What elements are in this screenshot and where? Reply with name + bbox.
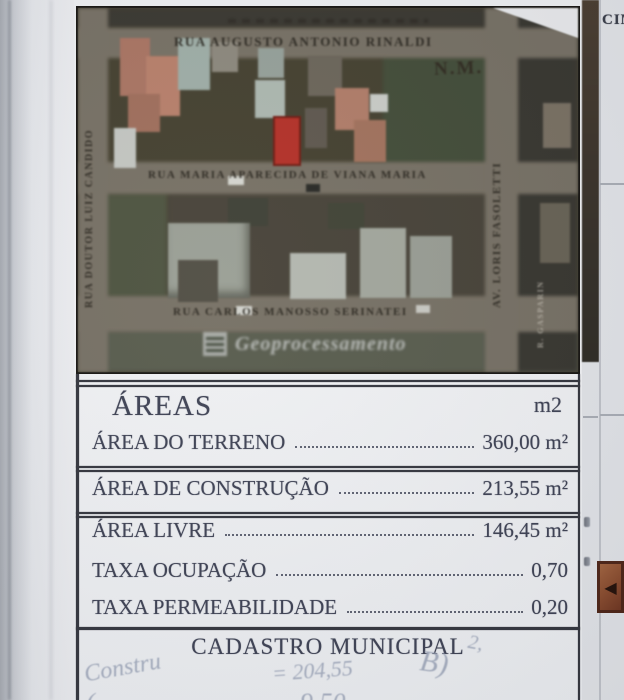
table-rule xyxy=(76,385,580,387)
photo-crease xyxy=(8,0,11,700)
adjacent-column-rule xyxy=(600,414,624,416)
area-row-value: 360,00 m² xyxy=(482,432,568,453)
map-building xyxy=(360,228,406,298)
leader-dots xyxy=(347,611,523,613)
map-small-text xyxy=(228,19,428,23)
map-building xyxy=(370,94,388,112)
map-building xyxy=(410,236,452,298)
area-row-value: 146,45 m² xyxy=(482,520,568,541)
satellite-map-image: RUA AUGUSTO ANTONIO RINALDI RUA MARIA AP… xyxy=(78,8,578,372)
handwritten-note: B) xyxy=(418,644,451,682)
area-row-label: ÁREA DE CONSTRUÇÃO xyxy=(92,478,329,499)
areas-unit-header: m2 xyxy=(500,392,562,418)
map-terrain xyxy=(103,193,168,298)
map-car xyxy=(416,305,430,313)
highlighted-lot xyxy=(273,116,301,166)
map-building xyxy=(114,128,136,168)
map-building xyxy=(354,120,386,162)
table-row: ÁREA LIVRE 146,45 m² xyxy=(92,520,568,541)
table-row: ÁREA DO TERRENO 360,00 m² xyxy=(92,432,568,453)
arrow-plaque-icon: ◀ xyxy=(597,561,624,613)
leader-dots xyxy=(225,534,474,536)
street-label-far-right: R. GASPARIN xyxy=(536,258,545,348)
table-rule xyxy=(76,512,580,514)
photo-background-strip xyxy=(582,0,599,362)
areas-title: ÁREAS xyxy=(112,390,212,423)
area-row-label: ÁREA DO TERRENO xyxy=(92,432,285,453)
area-row-value: 0,70 xyxy=(531,560,568,581)
map-building xyxy=(290,253,346,299)
table-rule xyxy=(76,380,580,382)
left-arrow-icon: ◀ xyxy=(604,578,616,597)
compass-label: N.M. xyxy=(434,57,484,81)
photo-crease xyxy=(50,0,52,700)
street-label-bottom: RUA CARLOS MANOSSO SERINATEI xyxy=(173,306,408,318)
map-trees xyxy=(228,198,268,226)
street-label-left: RUA DOUTOR LUIZ CANDIDO xyxy=(84,98,95,308)
table-row: TAXA PERMEABILIDADE 0,20 xyxy=(92,597,568,618)
watermark-text: Geoprocessamento xyxy=(235,333,407,356)
area-row-value: 0,20 xyxy=(531,597,568,618)
table-row: ÁREA DE CONSTRUÇÃO 213,55 m² xyxy=(92,478,568,499)
map-watermark: Geoprocessamento xyxy=(203,332,407,356)
map-building xyxy=(128,94,160,132)
handwritten-note-partial: 9,50 xyxy=(300,688,346,700)
table-row: TAXA OCUPAÇÃO 0,70 xyxy=(92,560,568,581)
map-building xyxy=(258,48,284,78)
street-label-right: AV. LORIS FASOLETTI xyxy=(491,93,503,308)
map-building xyxy=(543,103,571,148)
area-row-label: TAXA PERMEABILIDADE xyxy=(92,597,337,618)
cut-text-fragment xyxy=(584,517,590,527)
cut-text-fragment xyxy=(584,557,590,566)
photographed-cadastral-document: RUA AUGUSTO ANTONIO RINALDI RUA MARIA AP… xyxy=(0,0,624,700)
photo-left-edge xyxy=(0,0,75,700)
area-row-label: ÁREA LIVRE xyxy=(92,520,215,541)
adjacent-column-rule xyxy=(583,416,598,418)
street-label-middle: RUA MARIA APARECIDA DE VIANA MARIA xyxy=(148,169,427,181)
table-rule xyxy=(76,470,580,472)
watermark-logo-icon xyxy=(203,332,227,356)
map-trees xyxy=(328,203,364,229)
area-row-value: 213,55 m² xyxy=(482,478,568,499)
leader-dots xyxy=(339,492,475,494)
leader-dots xyxy=(295,446,474,448)
handwritten-note-partial: ( xyxy=(86,688,95,700)
map-building xyxy=(305,108,327,148)
map-building xyxy=(540,203,570,263)
adjacent-column-text: CIM xyxy=(602,12,624,29)
street-label-top: RUA AUGUSTO ANTONIO RINALDI xyxy=(174,34,433,50)
map-building xyxy=(178,260,218,302)
area-row-label: TAXA OCUPAÇÃO xyxy=(92,560,266,581)
map-car xyxy=(306,184,320,192)
leader-dots xyxy=(276,574,523,576)
table-rule xyxy=(76,466,580,468)
map-building xyxy=(255,80,285,118)
adjacent-column-rule xyxy=(600,183,624,185)
satellite-map: RUA AUGUSTO ANTONIO RINALDI RUA MARIA AP… xyxy=(76,6,580,374)
table-rule xyxy=(76,627,580,630)
